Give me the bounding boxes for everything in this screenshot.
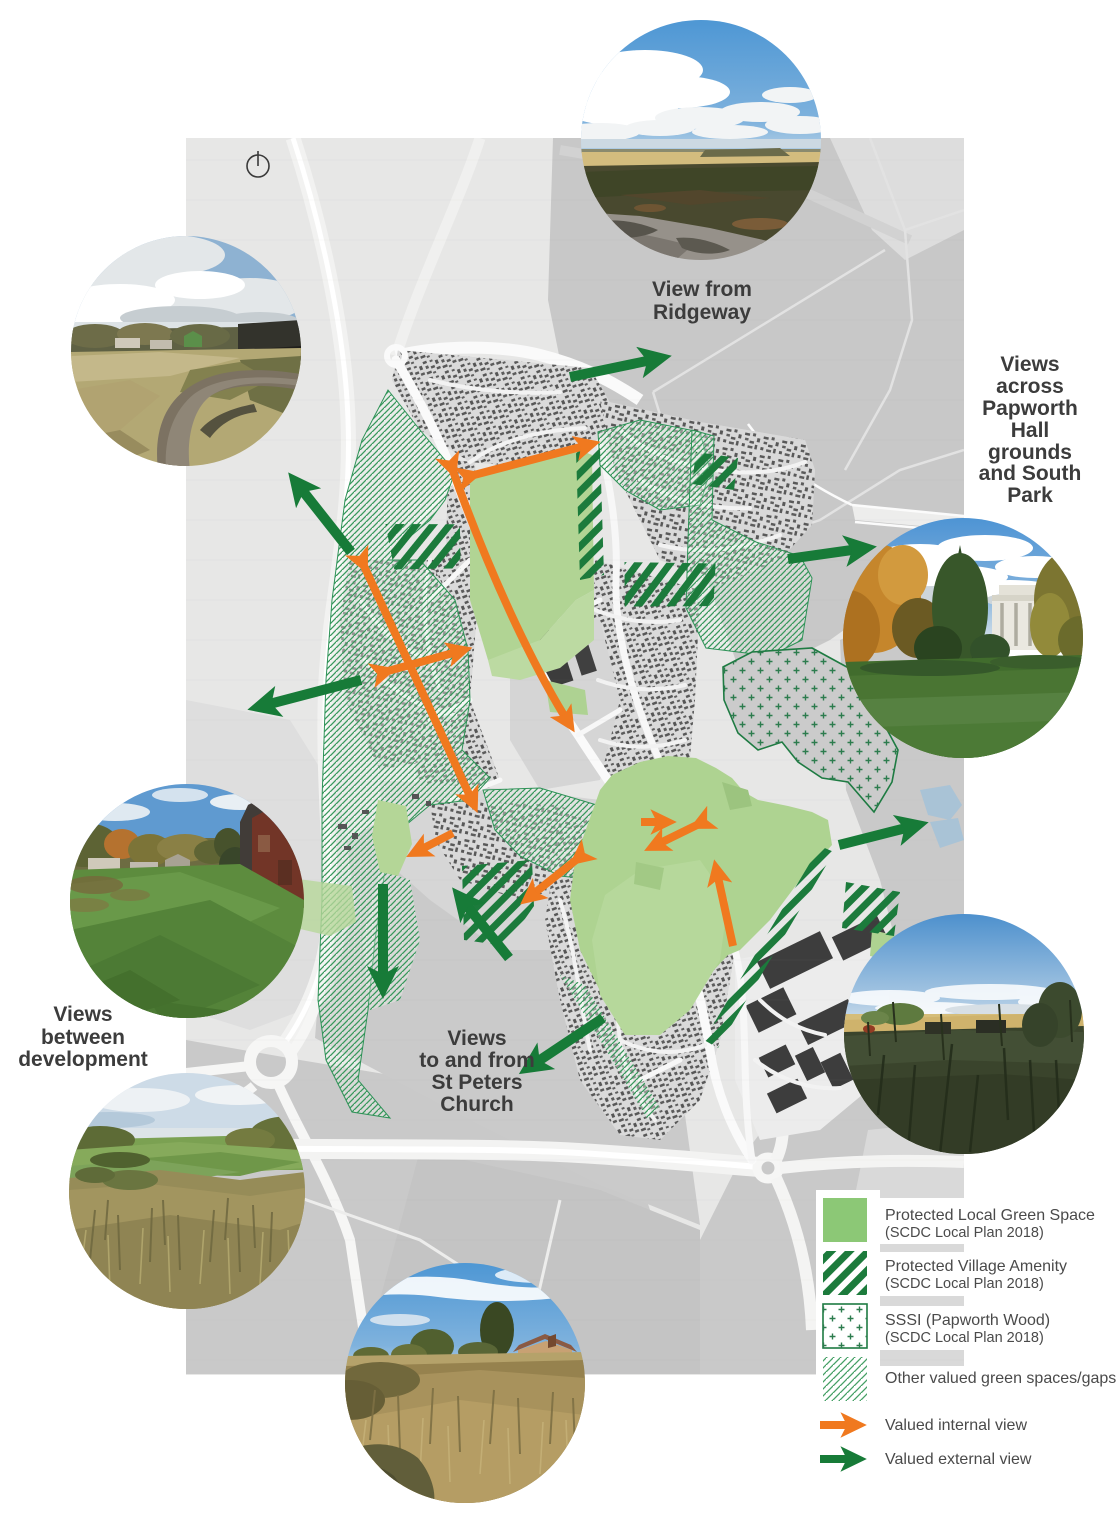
- svg-text:Protected Local Green Space: Protected Local Green Space: [885, 1207, 1095, 1224]
- svg-text:to and from: to and from: [419, 1049, 535, 1072]
- svg-text:Views: Views: [53, 1003, 112, 1026]
- svg-text:grounds: grounds: [988, 441, 1072, 464]
- svg-text:(SCDC Local Plan 2018): (SCDC Local Plan 2018): [885, 1276, 1044, 1292]
- svg-text:St Peters: St Peters: [431, 1071, 522, 1094]
- svg-text:Hall: Hall: [1011, 419, 1050, 442]
- svg-text:and South: and South: [979, 462, 1082, 485]
- svg-text:Valued internal view: Valued internal view: [885, 1417, 1027, 1434]
- svg-text:Papworth: Papworth: [982, 397, 1078, 420]
- svg-text:between: between: [41, 1026, 125, 1049]
- svg-text:View from: View from: [652, 278, 752, 301]
- svg-text:SSSI (Papworth Wood): SSSI (Papworth Wood): [885, 1312, 1050, 1329]
- svg-text:Park: Park: [1007, 484, 1053, 507]
- svg-text:Views: Views: [1000, 353, 1059, 376]
- svg-text:Ridgeway: Ridgeway: [653, 301, 751, 324]
- svg-text:development: development: [18, 1048, 148, 1071]
- svg-text:Valued external view: Valued external view: [885, 1451, 1032, 1468]
- svg-text:Other valued green spaces/gaps: Other valued green spaces/gaps: [885, 1370, 1116, 1387]
- svg-text:(SCDC Local Plan 2018): (SCDC Local Plan 2018): [885, 1225, 1044, 1241]
- svg-text:Church: Church: [440, 1093, 514, 1116]
- svg-text:Views: Views: [447, 1027, 506, 1050]
- svg-text:(SCDC Local Plan 2018): (SCDC Local Plan 2018): [885, 1330, 1044, 1346]
- svg-text:Protected Village Amenity: Protected Village Amenity: [885, 1258, 1067, 1275]
- svg-text:across: across: [996, 375, 1064, 398]
